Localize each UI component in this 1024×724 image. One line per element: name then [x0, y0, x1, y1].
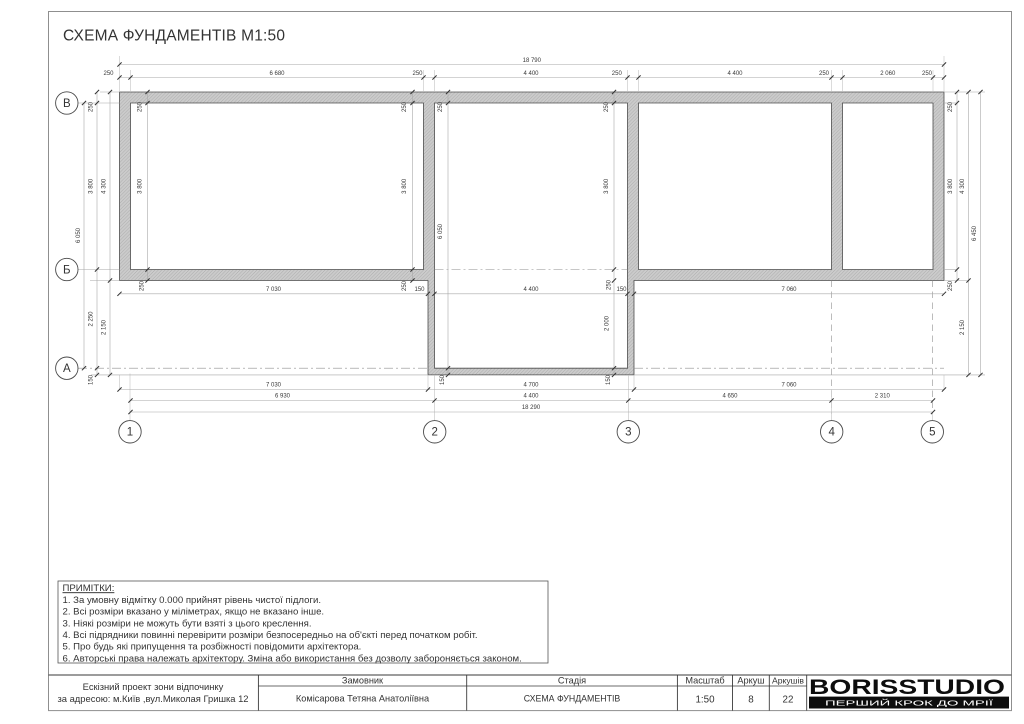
- svg-text:250: 250: [607, 279, 613, 290]
- svg-text:250: 250: [103, 71, 114, 77]
- svg-text:4 400: 4 400: [523, 287, 539, 293]
- svg-text:3 800: 3 800: [604, 178, 610, 194]
- svg-text:250: 250: [612, 71, 623, 77]
- svg-text:6. Авторські права належать ар: 6. Авторські права належать архітектору.…: [63, 653, 522, 664]
- svg-text:4. Всі підрядники повинні пере: 4. Всі підрядники повинні перевірити роз…: [63, 630, 478, 641]
- svg-text:250: 250: [948, 101, 954, 112]
- svg-text:2 310: 2 310: [875, 393, 891, 399]
- svg-text:4 700: 4 700: [523, 383, 539, 389]
- svg-text:3 800: 3 800: [138, 178, 144, 194]
- svg-text:В: В: [63, 98, 71, 110]
- svg-text:2 150: 2 150: [102, 319, 108, 335]
- svg-text:1: 1: [127, 427, 133, 439]
- svg-text:1:50: 1:50: [695, 695, 715, 706]
- svg-text:4 650: 4 650: [722, 393, 738, 399]
- svg-text:6 930: 6 930: [275, 393, 291, 399]
- svg-text:18 790: 18 790: [523, 58, 542, 64]
- svg-text:5: 5: [929, 427, 935, 439]
- svg-text:250: 250: [140, 280, 146, 291]
- svg-text:150: 150: [89, 374, 95, 385]
- svg-text:ПЕРШИЙ КРОК ДО МРІЇ: ПЕРШИЙ КРОК ДО МРІЇ: [825, 698, 993, 707]
- svg-text:2 150: 2 150: [960, 319, 966, 335]
- svg-text:4 400: 4 400: [523, 393, 539, 399]
- svg-text:2. Всі розміри вказано у мілім: 2. Всі розміри вказано у міліметрах, якщ…: [63, 607, 325, 618]
- svg-text:BORISSTUDIO: BORISSTUDIO: [809, 675, 1005, 699]
- svg-text:250: 250: [604, 101, 610, 112]
- svg-text:А: А: [63, 363, 71, 375]
- svg-text:Ескізний проект зони відпочинк: Ескізний проект зони відпочинку: [83, 681, 224, 692]
- svg-text:2 000: 2 000: [605, 315, 611, 331]
- svg-text:2 250: 2 250: [89, 311, 95, 327]
- svg-text:150: 150: [414, 287, 425, 293]
- svg-text:18 290: 18 290: [522, 405, 541, 411]
- svg-text:1. За умовну відмітку 0.000 пр: 1. За умовну відмітку 0.000 прийнят ріве…: [63, 595, 321, 606]
- svg-text:7 030: 7 030: [266, 287, 282, 293]
- svg-text:6 050: 6 050: [76, 227, 82, 243]
- svg-text:3 800: 3 800: [89, 178, 95, 194]
- svg-text:3. Ніякі розміри не можуть бут: 3. Ніякі розміри не можуть бути взяті з …: [63, 618, 312, 629]
- svg-text:150: 150: [616, 287, 627, 293]
- svg-text:ПРИМІТКИ:: ПРИМІТКИ:: [63, 583, 115, 594]
- svg-text:Комісарова Тетяна Анатоліївна: Комісарова Тетяна Анатоліївна: [296, 694, 430, 704]
- svg-text:250: 250: [138, 101, 144, 112]
- svg-text:7 030: 7 030: [266, 383, 282, 389]
- svg-text:7 060: 7 060: [781, 383, 797, 389]
- svg-text:2: 2: [431, 427, 437, 439]
- svg-text:Б: Б: [63, 264, 71, 276]
- svg-text:5. Про будь які припущення та: 5. Про будь які припущення та розбіжност…: [63, 642, 362, 653]
- svg-text:3 800: 3 800: [948, 178, 954, 194]
- svg-text:4 400: 4 400: [523, 71, 539, 77]
- svg-text:250: 250: [89, 101, 95, 112]
- svg-text:4: 4: [828, 427, 835, 439]
- svg-text:8: 8: [748, 695, 754, 706]
- svg-text:6 050: 6 050: [438, 223, 444, 239]
- svg-text:4 300: 4 300: [960, 178, 966, 194]
- svg-text:22: 22: [783, 695, 794, 706]
- svg-text:Аркуш: Аркуш: [737, 675, 764, 685]
- svg-text:150: 150: [440, 374, 446, 385]
- svg-text:250: 250: [922, 71, 933, 77]
- svg-text:3: 3: [625, 427, 631, 439]
- svg-text:4 400: 4 400: [727, 71, 743, 77]
- svg-text:3 800: 3 800: [402, 178, 408, 194]
- svg-text:250: 250: [402, 280, 408, 291]
- svg-text:6 450: 6 450: [972, 225, 978, 241]
- svg-text:Стадія: Стадія: [558, 675, 586, 685]
- svg-text:250: 250: [412, 71, 423, 77]
- svg-text:250: 250: [402, 101, 408, 112]
- svg-text:6 680: 6 680: [269, 71, 285, 77]
- svg-text:СХЕМА ФУНДАМЕНТІВ М1:50: СХЕМА ФУНДАМЕНТІВ М1:50: [63, 28, 285, 45]
- svg-text:4 300: 4 300: [102, 178, 108, 194]
- svg-text:2 060: 2 060: [880, 71, 896, 77]
- svg-text:250: 250: [948, 280, 954, 291]
- svg-text:250: 250: [438, 101, 444, 112]
- svg-text:7 060: 7 060: [781, 287, 797, 293]
- svg-text:250: 250: [819, 71, 830, 77]
- svg-text:150: 150: [606, 374, 612, 385]
- svg-text:СХЕМА ФУНДАМЕНТІВ: СХЕМА ФУНДАМЕНТІВ: [524, 694, 621, 704]
- svg-text:Замовник: Замовник: [342, 675, 384, 685]
- svg-text:Масштаб: Масштаб: [685, 675, 724, 685]
- svg-text:Аркушів: Аркушів: [772, 675, 804, 685]
- svg-text:за адресою: м.Київ ,вул.Микола: за адресою: м.Київ ,вул.Миколая Гришка 1…: [57, 693, 248, 704]
